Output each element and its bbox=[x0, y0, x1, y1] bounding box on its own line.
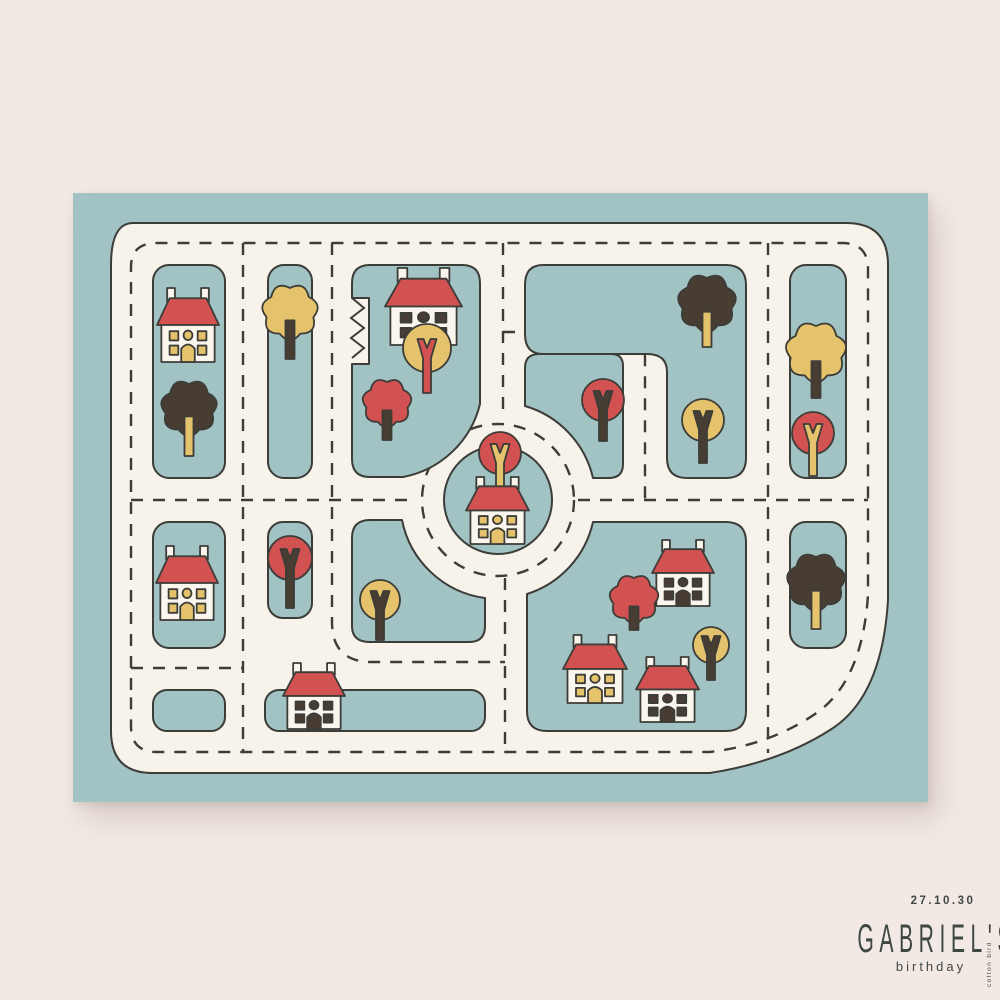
house bbox=[636, 657, 699, 722]
house bbox=[156, 546, 218, 620]
poster-subtitle: birthday bbox=[851, 959, 1000, 974]
brand-watermark: cotton bird bbox=[986, 927, 993, 987]
poster-name: GABRIEL'S bbox=[857, 915, 1000, 962]
house bbox=[157, 288, 219, 362]
house bbox=[283, 663, 345, 729]
poster: 27.10.30 GABRIEL'S birthday cotton bird bbox=[73, 193, 928, 802]
house bbox=[652, 540, 714, 606]
poster-date: 27.10.30 bbox=[873, 895, 1000, 907]
play-mat-graphic bbox=[73, 193, 928, 802]
house bbox=[466, 477, 529, 544]
photo-background: 27.10.30 GABRIEL'S birthday cotton bird bbox=[0, 0, 1000, 1000]
